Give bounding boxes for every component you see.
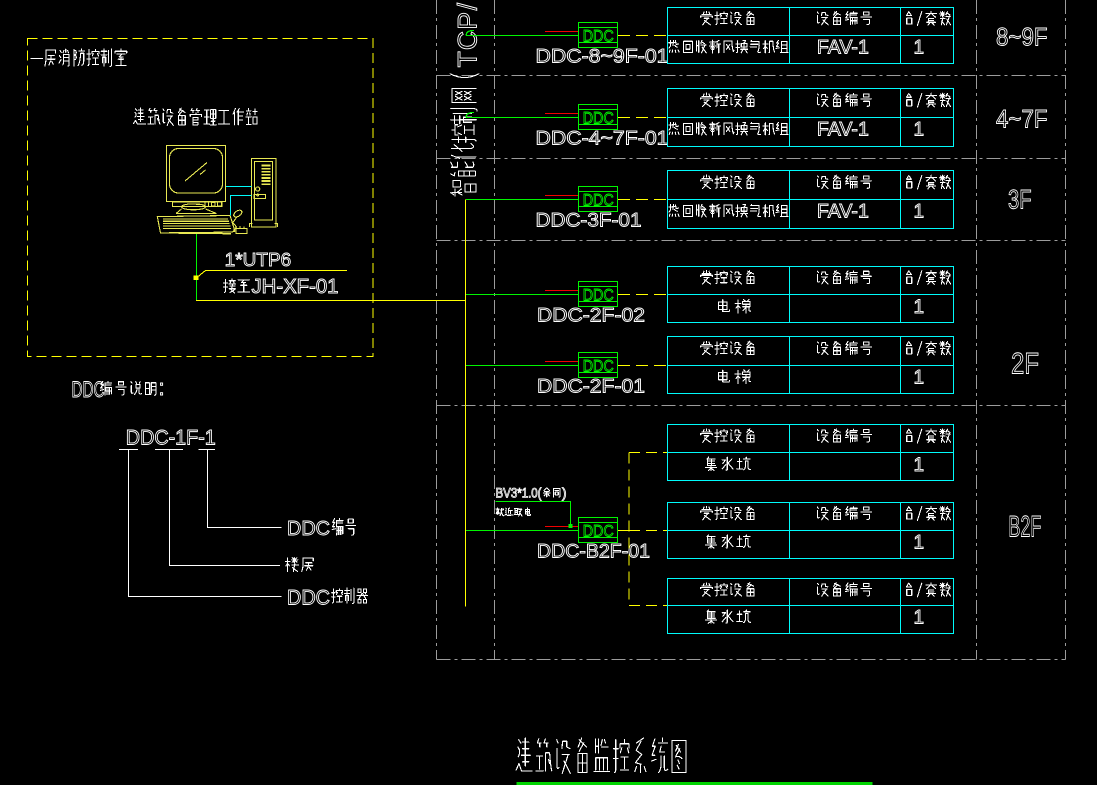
svg-text:/: /	[452, 2, 482, 10]
svg-text:DDC-8~9F-01: DDC-8~9F-01	[536, 47, 669, 68]
svg-text:2F: 2F	[1011, 348, 1039, 381]
svg-text:DDC: DDC	[583, 191, 614, 210]
svg-text:DDC: DDC	[287, 517, 330, 540]
svg-text:1: 1	[914, 120, 925, 141]
svg-text:T: T	[452, 51, 482, 67]
svg-text:1: 1	[914, 455, 925, 476]
svg-text:DDC-1F-1: DDC-1F-1	[126, 427, 216, 450]
svg-text:DDC-B2F-01: DDC-B2F-01	[537, 542, 650, 563]
svg-text:FAV-1: FAV-1	[817, 120, 869, 141]
svg-text:1: 1	[914, 368, 925, 389]
svg-text:DDC-3F-01: DDC-3F-01	[536, 211, 642, 232]
svg-text:DDC: DDC	[583, 27, 614, 46]
svg-text:1: 1	[914, 297, 925, 318]
svg-text:DDC: DDC	[583, 109, 614, 128]
svg-text:8~9F: 8~9F	[996, 24, 1048, 52]
svg-text:P: P	[452, 12, 482, 30]
svg-text::: :	[159, 375, 165, 400]
svg-text:3F: 3F	[1008, 185, 1032, 215]
svg-text:4~7F: 4~7F	[996, 106, 1048, 134]
svg-text:DDC: DDC	[583, 522, 614, 541]
svg-text:JH-XF-01: JH-XF-01	[252, 276, 339, 298]
svg-text:1: 1	[914, 38, 925, 59]
svg-text:B2F: B2F	[1008, 511, 1041, 544]
svg-text:DDC-2F-01: DDC-2F-01	[537, 377, 645, 398]
svg-text:C: C	[452, 31, 482, 50]
svg-text:DDC-2F-02: DDC-2F-02	[537, 306, 645, 327]
svg-text:1*UTP6: 1*UTP6	[225, 249, 292, 270]
svg-text:FAV-1: FAV-1	[817, 38, 869, 59]
svg-text:DDC-4~7F-01: DDC-4~7F-01	[536, 129, 669, 150]
svg-text:DDC: DDC	[583, 357, 614, 376]
svg-text:1: 1	[914, 202, 925, 223]
svg-text:BV3*1.0(: BV3*1.0(	[496, 486, 542, 501]
svg-text:DDC: DDC	[72, 377, 105, 402]
svg-text:1: 1	[914, 533, 925, 554]
svg-text:DDC: DDC	[287, 586, 330, 609]
svg-text:DDC: DDC	[583, 286, 614, 305]
svg-text:1: 1	[914, 608, 925, 629]
svg-text:FAV-1: FAV-1	[817, 202, 869, 223]
svg-text:): )	[562, 486, 567, 501]
